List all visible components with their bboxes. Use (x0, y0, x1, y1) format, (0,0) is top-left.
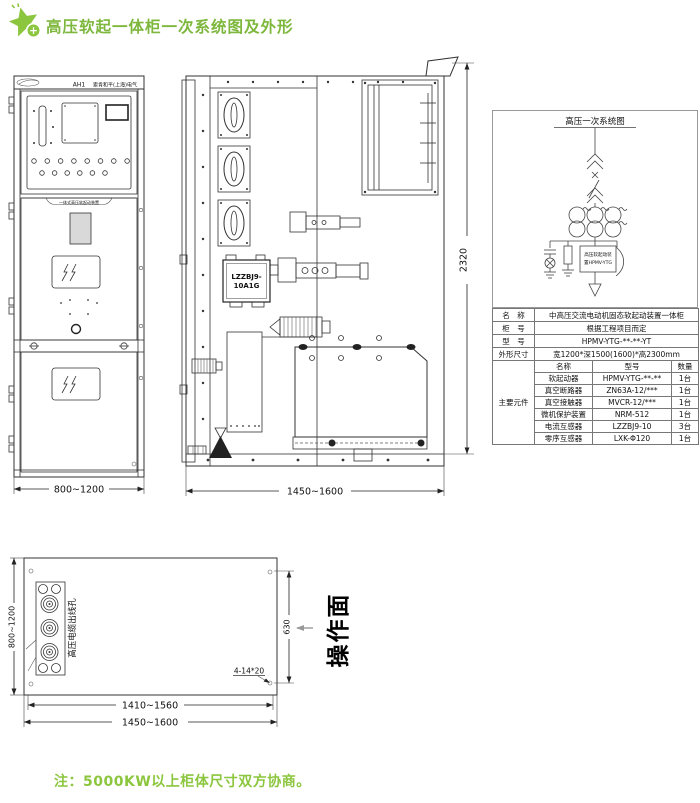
roller (329, 440, 336, 447)
warning-label (52, 368, 100, 400)
front-label-band: 一体式高压软起动装置 (22, 198, 136, 205)
bolt-head (299, 344, 308, 350)
protection-relay-display (62, 103, 98, 143)
front-cabinet-frame (14, 76, 144, 477)
ct-model-line1: LZZBJ9- (231, 273, 261, 281)
spec-table: 名 称 中高压交流电动机固态软起动装置一体柜 柜 号 根据工程项目而定 型 号 … (492, 308, 699, 445)
row-label: 名 称 (493, 309, 535, 322)
leader-arrow (264, 679, 271, 684)
schematic-title: 高压一次系统图 (565, 116, 625, 127)
footer-note: 注：5000KW以上柜体尺寸双方协商。 (54, 771, 311, 791)
plan-inner-dimension: 1410~1560 (28, 695, 273, 712)
plan-left-dimension: 800~1200 (8, 558, 25, 695)
table-row: 外形尺寸 宽1200*深1500(1600)*高2300mm (493, 348, 699, 361)
bushing (218, 146, 250, 192)
page-header: + 高压软起一体柜一次系统图及外形 (6, 3, 426, 43)
cable-hole (41, 644, 58, 661)
lifting-lug (426, 57, 458, 76)
front-nameplate-bar: AH1 索肯和平(上海)电气 (14, 76, 144, 89)
band-label: 一体式高压软起动装置 (59, 199, 99, 205)
front-view-drawing: AH1 索肯和平(上海)电气 一体式高压软起动装置 (8, 60, 153, 498)
side-cabinet-frame (180, 57, 458, 466)
bushing (218, 200, 250, 246)
roller (418, 440, 425, 447)
brand-logo (17, 79, 39, 86)
cable-hole (41, 596, 58, 613)
front-width-dimension: 800~1200 (14, 477, 144, 496)
table-row: 名 称 中高压交流电动机固态软起动装置一体柜 (493, 309, 699, 322)
current-transformer: LZZBJ9- 10A1G (223, 255, 270, 307)
drawing-sheet: { "header": { "title": "高压软起一体柜一次系统图及外形"… (0, 0, 700, 803)
inspection-window (70, 213, 91, 244)
plan-view-drawing: 高压电缆出线孔 800~1200 630 4-14*20 1410~1560 1… (0, 545, 368, 740)
page-title: 高压软起一体柜一次系统图及外形 (46, 15, 294, 37)
door-lock (72, 325, 81, 334)
panel-code-label: AH1 (73, 81, 86, 88)
col-header-model: 型号 (593, 361, 672, 373)
sparkle-icon (12, 4, 19, 9)
holes-note-label: 4-14*20 (234, 667, 265, 676)
dim-630-label: 630 (283, 619, 292, 634)
lightning-icon (70, 376, 76, 393)
components-header-row: 主要元件 名称 型号 数量 (493, 361, 699, 373)
front-middle-door (21, 198, 137, 340)
table-row: 型 号 HPMV-YTG-**-**-YT (493, 335, 699, 348)
lightning-icon (62, 264, 68, 281)
holes-note: 4-14*20 (233, 667, 270, 684)
single-line-diagram: 高压一次系统图 (492, 110, 698, 308)
cable-hole-label: 高压电缆出线孔 (67, 598, 78, 658)
device-box-line2: 置HPMV-YTG (584, 260, 612, 266)
lightning-icon (70, 264, 76, 281)
schematic-title-group: 高压一次系统图 (554, 116, 636, 128)
meter-slot (39, 106, 46, 146)
cable-compartment-box (295, 336, 427, 438)
post-insulator-horizontal (270, 317, 330, 337)
cable-gland-plate: 高压电缆出线孔 (26, 582, 78, 675)
star-icon: + (6, 3, 44, 41)
door-hinges (9, 97, 14, 452)
company-label: 索肯和平(上海)电气 (93, 81, 137, 88)
side-view-drawing: LZZBJ9- 10A1G (178, 55, 478, 500)
row-value: HPMV-YTG-**-**-YT (535, 335, 699, 348)
components-group-label: 主要元件 (493, 361, 535, 445)
plan-outer-dim-label: 1450~1600 (122, 718, 178, 729)
operation-face: 操作面 (296, 593, 352, 668)
plan-inner-dim-label: 1410~1560 (122, 701, 178, 712)
front-control-panel (21, 91, 137, 194)
device-box-line1: 高压软起动装 (584, 251, 612, 258)
height-dimension: 2320 (444, 63, 474, 454)
cable-hole (41, 620, 58, 637)
bushing (218, 92, 250, 138)
row-label: 型 号 (493, 335, 535, 348)
row-value: 根据工程项目而定 (535, 322, 699, 335)
switch-window (106, 105, 128, 120)
front-divider (14, 340, 144, 352)
height-dim-label: 2320 (459, 248, 470, 272)
bolt-head (353, 344, 362, 350)
plan-left-dim-label: 800~1200 (8, 606, 17, 648)
indicator-lights (32, 159, 130, 176)
front-width-dim-label: 800~1200 (54, 485, 104, 496)
bushing-insulators (218, 92, 250, 246)
table-row: 柜 号 根据工程项目而定 (493, 322, 699, 335)
row-label: 外形尺寸 (493, 348, 535, 361)
row-label: 柜 号 (493, 322, 535, 335)
operation-face-label: 操作面 (326, 593, 352, 668)
lightning-icon (62, 376, 68, 393)
depth-dimension: 1450~1600 (186, 466, 444, 498)
post-insulator-lower (192, 359, 222, 373)
col-header-qty: 数量 (672, 361, 699, 373)
front-right-screws (139, 208, 142, 379)
bolt-head (407, 344, 416, 350)
front-lower-door (21, 352, 137, 472)
col-header-name: 名称 (535, 361, 593, 373)
ct-model-line2: 10A1G (234, 282, 260, 290)
right-panel: 高压一次系统图 (492, 110, 698, 445)
ground-symbol (209, 428, 232, 458)
warning-label (52, 256, 100, 288)
relay-compartment-panel (362, 80, 438, 195)
row-value: 中高压交流电动机固态软起动装置一体柜 (535, 309, 699, 322)
plus-icon: + (29, 25, 38, 37)
depth-dim-label: 1450~1600 (287, 487, 343, 498)
row-value: 宽1200*深1500(1600)*高2300mm (535, 348, 699, 361)
